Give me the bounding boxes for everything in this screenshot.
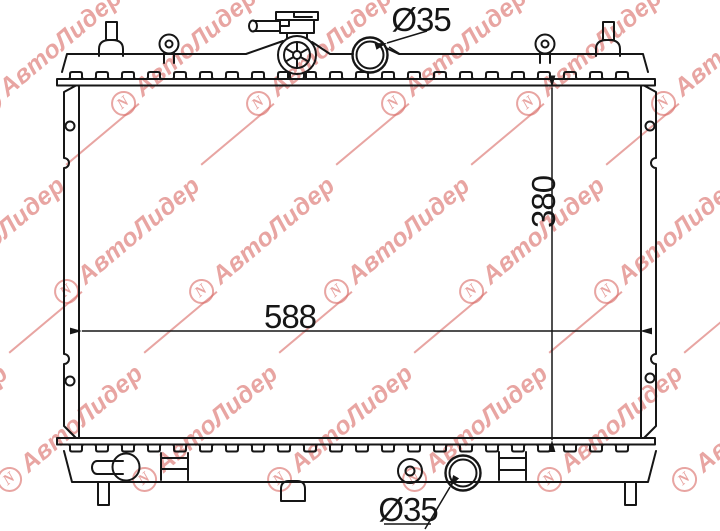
- bottom-dome-tab: [281, 481, 305, 501]
- overflow-pipe: [249, 21, 280, 32]
- radiator-schematic: 588 380 Ø35 Ø35: [0, 0, 720, 531]
- inlet-diameter-label: Ø35: [391, 1, 450, 38]
- bottom-mount-circle: [398, 459, 422, 483]
- mounting-peg-bottom-right: [625, 482, 636, 505]
- outlet-diameter-label: Ø35: [378, 491, 437, 528]
- mounting-peg-bottom-left: [98, 482, 109, 505]
- bottom-crimp-strip: [62, 445, 648, 452]
- side-member-right: [644, 86, 656, 439]
- top-crimp-strip: [62, 72, 648, 79]
- drain-plug: [92, 454, 140, 481]
- dimension-width-label: 588: [264, 298, 316, 335]
- bottom-tank-outline: [64, 451, 656, 482]
- inlet-pipe-top: [353, 38, 388, 73]
- radiator-drawing: NАвтоЛидерNАвтоЛидерNАвтоЛидерNАвтоЛидер…: [0, 0, 720, 531]
- dimension-height-label: 380: [525, 175, 562, 228]
- dimension-width: 588: [82, 298, 640, 335]
- callout-inlet-top: Ø35: [387, 1, 451, 54]
- filler-cap: [276, 12, 318, 38]
- mounting-pin-top-left: [99, 22, 123, 56]
- radiator-core: [79, 86, 641, 439]
- bracket-ladder-left: [161, 453, 188, 480]
- grommet-mount-right: [536, 35, 555, 64]
- dimension-height: 380: [525, 88, 562, 441]
- side-member-left: [64, 86, 76, 439]
- grommet-mount-left: [160, 35, 179, 64]
- mounting-pin-top-right: [596, 22, 620, 56]
- bracket-ladder-right: [499, 452, 526, 480]
- callout-outlet-bottom: Ø35: [378, 487, 450, 529]
- outlet-pipe-bottom: [446, 456, 481, 491]
